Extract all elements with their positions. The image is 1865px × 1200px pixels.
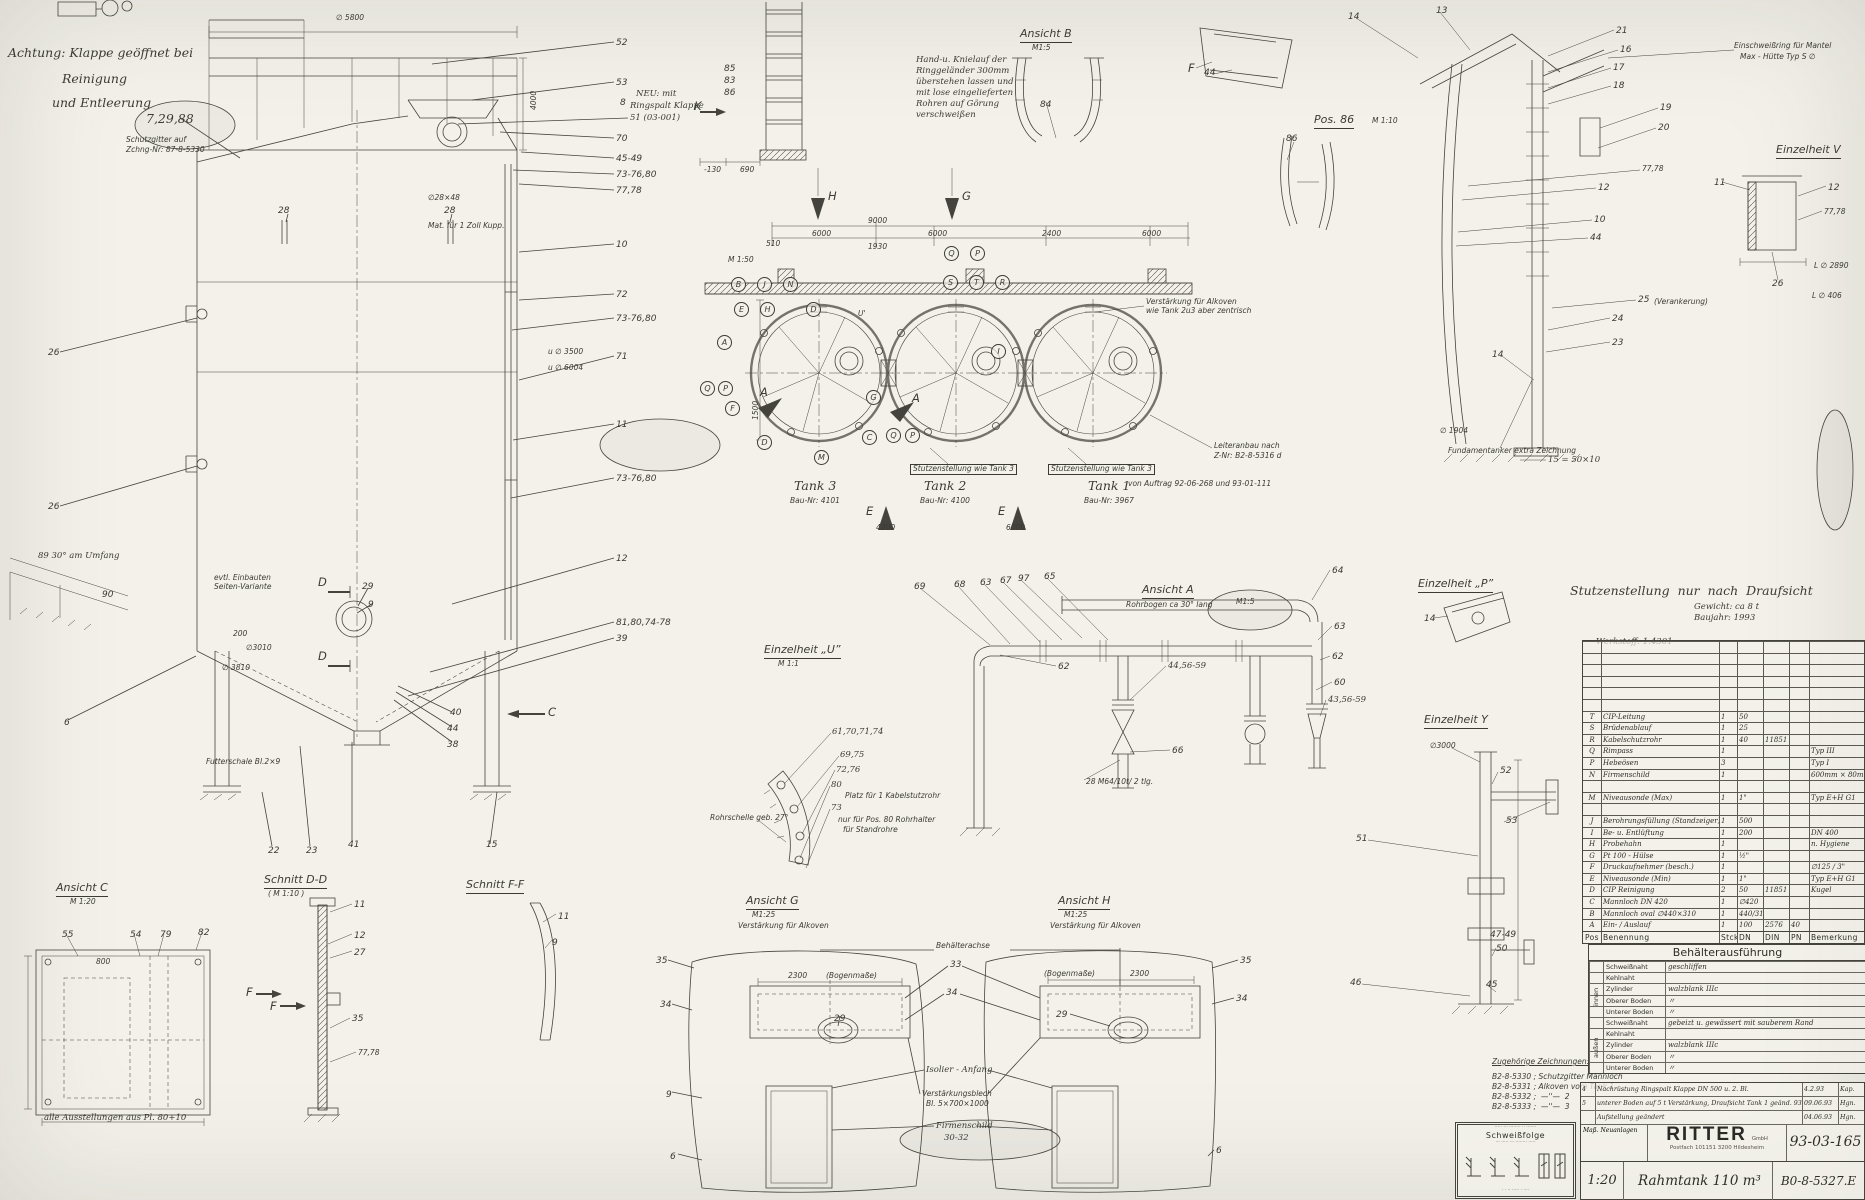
- drawing-label: Pos. 86: [1314, 114, 1354, 129]
- cell-bemerkung: DN 400: [1809, 828, 1864, 839]
- cell-label: Zylinder: [1603, 1040, 1665, 1050]
- cell-dn: [1737, 700, 1763, 711]
- cell-benennung: [1601, 665, 1719, 676]
- drawing-label: 9: [666, 1090, 672, 1100]
- drawing-label: Einzelheit V: [1776, 144, 1841, 159]
- drawing-label: 65: [1044, 572, 1055, 582]
- revision-row: 5 unterer Boden auf 5 t Verstärkung, Dra…: [1581, 1097, 1864, 1111]
- cell-dn: 200: [1737, 828, 1763, 839]
- cell-pn: [1789, 770, 1809, 781]
- drawing-label: E: [998, 505, 1005, 518]
- drawing-label: 17: [1613, 63, 1624, 73]
- cell-stck: 1: [1719, 851, 1737, 862]
- cell-side: [1589, 973, 1603, 983]
- cell-benennung: Pt 100 - Hülse: [1601, 851, 1719, 862]
- drawing-label: U': [858, 310, 866, 319]
- drawing-label: -130: [704, 166, 721, 175]
- drawing-label: Z-Nr: B2-8-5316 d: [1214, 452, 1281, 461]
- cell-bemerkung: Typ I: [1809, 758, 1864, 769]
- nozzle-balloon: I: [991, 344, 1006, 359]
- einzelheit-p: [1434, 592, 1510, 642]
- einzelheit-y: [1362, 748, 1558, 1014]
- drawing-label: Stutzenstellung nur nach Draufsicht: [1570, 584, 1813, 598]
- drawing-label: 81,80,74-78: [616, 618, 671, 628]
- cell-pos: [1583, 700, 1601, 711]
- nozzle-balloon: B: [731, 277, 746, 292]
- revision-no: 4: [1581, 1083, 1595, 1096]
- drawing-label: Bau-Nr: 4100: [920, 497, 970, 506]
- drawing-label: 2300: [788, 972, 807, 981]
- ausfuehrung-row: Kehlnaht: [1589, 972, 1865, 983]
- cell-din: [1763, 874, 1789, 885]
- cell-bemerkung: Kugel: [1809, 885, 1864, 896]
- drawing-label: Verstärkungsblech: [922, 1090, 992, 1099]
- cell-benennung: Be- u. Entlüftung: [1601, 828, 1719, 839]
- nozzle-balloon: P: [970, 246, 985, 261]
- nozzle-balloon: P: [905, 428, 920, 443]
- cell-bemerkung: [1809, 804, 1864, 815]
- cell-stck: 1: [1719, 712, 1737, 723]
- parts-table-row: Q Rimpass 1 Typ III: [1583, 745, 1864, 757]
- drawing-label: 52: [1500, 766, 1511, 776]
- drawing-label: 12: [354, 931, 365, 941]
- cell-din: [1763, 909, 1789, 920]
- drawing-label: für Standrohre: [843, 826, 898, 835]
- cell-dn: 1": [1737, 793, 1763, 804]
- drawing-label: 61,70,71,74: [832, 728, 883, 738]
- drawing-label: 6000: [1142, 230, 1161, 239]
- drawing-label: und Entleerung: [52, 96, 151, 110]
- cell-bemerkung: n. Hygiene: [1809, 839, 1864, 850]
- drawing-label: 44,56-59: [1168, 662, 1206, 672]
- drawing-label: 11: [354, 900, 365, 910]
- nozzle-balloon: S: [943, 275, 958, 290]
- drawing-label: 6: [64, 718, 70, 728]
- drawing-label: Schnitt D-D: [264, 874, 327, 889]
- drawing-label: 4200: [876, 524, 895, 533]
- drawing-label: Verstärkung für Alkoven: [738, 922, 829, 931]
- drawing-label: 77,78: [616, 186, 642, 196]
- nozzle-balloon: N: [783, 277, 798, 292]
- cell-benennung: Niveausonde (Min): [1601, 874, 1719, 885]
- cell-stck: [1719, 677, 1737, 688]
- cell-pos: [1583, 677, 1601, 688]
- cell-pos: A: [1583, 920, 1601, 931]
- cell-din: 2576: [1763, 920, 1789, 931]
- cell-pos: J: [1583, 816, 1601, 827]
- cell-label: Unterer Boden: [1603, 1007, 1665, 1017]
- drawing-label: 90: [102, 590, 113, 600]
- drawing-label: 8: [620, 98, 626, 108]
- cell-stck: [1719, 642, 1737, 653]
- ausfuehrung-row: Schweißnaht gebeizt u. gewässert mit sau…: [1589, 1017, 1865, 1028]
- cell-din: [1763, 723, 1789, 734]
- revision-rows: 4 Nachrüstung Ringspalt Klappe DN 500 u.…: [1581, 1083, 1864, 1125]
- cell-pn: [1789, 735, 1809, 746]
- drawing-label: 52: [616, 38, 627, 48]
- drawing-label: 71: [616, 352, 627, 362]
- drawing-label: 46: [1350, 978, 1361, 988]
- drawing-label: 35: [352, 1014, 363, 1024]
- drawing-label: Stutzenstellung wie Tank 3: [1048, 464, 1155, 475]
- ausfuehrung-title: Behälterausführung: [1589, 945, 1865, 961]
- drawing-label: 79: [160, 930, 171, 940]
- drawing-label: u ∅ 3500: [548, 348, 583, 357]
- cell-bemerkung: [1809, 665, 1864, 676]
- drawing-label: Isolier - Anfang: [926, 1066, 992, 1076]
- cell-pn: [1789, 688, 1809, 699]
- drawing-label: ∅ 1904: [1440, 427, 1468, 436]
- cell-pos: M: [1583, 793, 1601, 804]
- drawing-label: F: [246, 986, 253, 999]
- cell-stck: 1: [1719, 909, 1737, 920]
- cell-dn: 440/310: [1737, 909, 1763, 920]
- drawing-label: 29: [834, 1014, 845, 1024]
- drawing-label: M1:25: [752, 911, 775, 920]
- cell-din: [1763, 642, 1789, 653]
- cell-pos: [1583, 665, 1601, 676]
- cell-bemerkung: Bemerkung: [1809, 932, 1864, 943]
- title-block: 4 Nachrüstung Ringspalt Klappe DN 500 u.…: [1580, 1082, 1865, 1200]
- cell-label: Schweißnaht: [1603, 1018, 1665, 1028]
- drawing-label: M1:5: [1236, 598, 1255, 607]
- cell-bemerkung: [1809, 688, 1864, 699]
- drawing-label: 26: [48, 502, 59, 512]
- roof-sketch: [1356, 12, 1560, 88]
- drawing-label: 16: [1620, 45, 1631, 55]
- cell-dn: [1737, 770, 1763, 781]
- cell-stck: [1719, 804, 1737, 815]
- drawing-label: Achtung: Klappe geöffnet bei: [8, 46, 193, 60]
- drawing-label: u ∅ 6004: [548, 364, 583, 373]
- drawing-label: 6000: [928, 230, 947, 239]
- cell-din: [1763, 758, 1789, 769]
- drawing-label: 73-76,80: [616, 474, 656, 484]
- cell-stck: 2: [1719, 885, 1737, 896]
- cell-bemerkung: 600mm × 80mm: [1809, 770, 1864, 781]
- cell-stck: 1: [1719, 828, 1737, 839]
- parts-table-row: [1583, 664, 1864, 676]
- cell-pos: I: [1583, 828, 1601, 839]
- einzelheit-v: [1722, 176, 1826, 280]
- cell-pos: D: [1583, 885, 1601, 896]
- revision-no: 5: [1581, 1097, 1595, 1110]
- drawing-label: E: [866, 505, 873, 518]
- drawing-label: Gewicht: ca 8 t: [1694, 603, 1759, 613]
- cell-din: [1763, 851, 1789, 862]
- cell-pos: [1583, 804, 1601, 815]
- drawing-label: 6: [670, 1152, 676, 1162]
- cell-pn: [1789, 909, 1809, 920]
- drawing-label: 26: [48, 348, 59, 358]
- ansicht-g: [689, 951, 924, 1192]
- cell-stck: [1719, 688, 1737, 699]
- cell-dn: 25: [1737, 723, 1763, 734]
- cell-pos: H: [1583, 839, 1601, 850]
- drawing-label: Mat. für 1 Zoll Kupp.: [428, 222, 504, 231]
- right-elevation: [1442, 30, 1734, 462]
- drawing-label: 35: [656, 956, 667, 966]
- cell-pn: PN: [1789, 932, 1809, 943]
- cell-dn: 100: [1737, 920, 1763, 931]
- cell-pos: [1583, 654, 1601, 665]
- parts-table-row: [1583, 699, 1864, 711]
- drawing-label: Baujahr: 1993: [1694, 614, 1755, 624]
- parts-table-row: G Pt 100 - Hülse 1 ½": [1583, 850, 1864, 862]
- drawing-label: 9000: [868, 217, 887, 226]
- company-logo: RITTER GmbH Postfach 101151 3200 Hildesh…: [1647, 1125, 1786, 1161]
- parts-table-row: S Brüdenablauf 1 25: [1583, 722, 1864, 734]
- drawing-label: 7,29,88: [146, 112, 194, 126]
- ausfuehrung-row: Kehlnaht: [1589, 1028, 1865, 1039]
- drawing-label: F: [270, 1000, 277, 1013]
- drawing-label: 64: [1332, 566, 1343, 576]
- drawing-label: Verstärkung für Alkoven: [1050, 922, 1141, 931]
- drawing-label: 25: [1638, 295, 1649, 305]
- cell-label: Schweißnaht: [1603, 962, 1665, 972]
- parts-table-row: Pos Benennung Stck DN DIN PN Bemerkung: [1583, 931, 1864, 943]
- drawing-label: 72: [616, 290, 627, 300]
- drawing-label: 9: [368, 600, 374, 610]
- cell-benennung: Ein- / Auslauf: [1601, 920, 1719, 931]
- cell-pos: [1583, 688, 1601, 699]
- drawing-label: (Verankerung): [1654, 298, 1708, 307]
- drawing-label: mit lose eingelieferten: [916, 89, 1013, 99]
- cell-pos: Pos: [1583, 932, 1601, 943]
- cell-dn: [1737, 688, 1763, 699]
- parts-table-row: [1583, 653, 1864, 665]
- drawing-label: 29: [362, 582, 373, 592]
- drawing-label: 34: [660, 1000, 671, 1010]
- drawing-label: 12: [1828, 183, 1839, 193]
- parts-table-row: P Hebeösen 3 Typ I: [1583, 757, 1864, 769]
- drawing-label: 12: [1598, 183, 1609, 193]
- nozzle-balloon: G: [866, 390, 881, 405]
- cell-pn: [1789, 654, 1809, 665]
- drawing-label: Ringspalt Klappe: [630, 102, 704, 112]
- drawing-label: F: [1188, 62, 1195, 75]
- cell-bemerkung: [1809, 897, 1864, 908]
- ausfuehrung-row: Unterer Boden 〃: [1589, 1062, 1865, 1073]
- drawing-label: 11: [616, 420, 627, 430]
- cell-benennung: Kabelschutzrohr: [1601, 735, 1719, 746]
- cell-pn: [1789, 758, 1809, 769]
- cell-pos: [1583, 642, 1601, 653]
- nozzle-balloon: M: [814, 450, 829, 465]
- cell-side: [1589, 1063, 1603, 1073]
- drawing-label: M1:25: [1064, 911, 1087, 920]
- cell-bemerkung: Typ E+H G1: [1809, 793, 1864, 804]
- cell-benennung: [1601, 654, 1719, 665]
- drawing-label: 53: [616, 78, 627, 88]
- cell-pn: [1789, 862, 1809, 873]
- cell-benennung: Brüdenablauf: [1601, 723, 1719, 734]
- drawing-label: 62: [1332, 652, 1343, 662]
- parts-table-row: C Mannloch DN 420 1 ∅420: [1583, 896, 1864, 908]
- drawing-label: 12: [616, 554, 627, 564]
- cell-pos: B: [1583, 909, 1601, 920]
- drawing-label: 27: [354, 948, 365, 958]
- revision-text: Nachrüstung Ringspalt Klappe DN 500 u. 2…: [1595, 1083, 1802, 1096]
- nozzle-balloon: C: [862, 430, 877, 445]
- drawing-label: 6000: [812, 230, 831, 239]
- cell-value: [1665, 973, 1865, 983]
- drawing-label: 73-76,80: [616, 170, 656, 180]
- drawing-label: 20: [1658, 123, 1669, 133]
- drawing-label: 77,78: [358, 1049, 379, 1058]
- cell-benennung: Druckaufnehmer (besch.): [1601, 862, 1719, 873]
- cell-side: [1589, 1018, 1603, 1028]
- drawing-label: 15: [486, 840, 497, 850]
- drawing-label: 10: [1594, 215, 1605, 225]
- cell-label: Oberer Boden: [1603, 996, 1665, 1006]
- drawing-label: 19: [1660, 103, 1671, 113]
- drawing-label: 63: [980, 578, 991, 588]
- cell-benennung: CIP-Leitung: [1601, 712, 1719, 723]
- drawing-label: 18: [1613, 81, 1624, 91]
- cell-stck: 1: [1719, 793, 1737, 804]
- nozzle-balloon: A: [717, 335, 732, 350]
- drawing-label: 62: [1058, 662, 1069, 672]
- parts-table-row: [1583, 780, 1864, 792]
- cell-value: walzblank IIIc: [1665, 1040, 1865, 1050]
- cell-value: 〃: [1665, 1052, 1865, 1062]
- parts-table-row: N Firmenschild 1 600mm × 80mm: [1583, 769, 1864, 781]
- cell-pn: [1789, 642, 1809, 653]
- cell-bemerkung: ∅125 / 3": [1809, 862, 1864, 873]
- drawing-label: 47-49: [1490, 930, 1516, 940]
- einzelheit-u: [758, 733, 839, 868]
- nozzle-balloon: T: [969, 275, 984, 290]
- cell-pos: Q: [1583, 746, 1601, 757]
- drawing-label: 24: [1612, 314, 1623, 324]
- cell-din: [1763, 700, 1789, 711]
- cell-label: Kehlnaht: [1603, 973, 1665, 983]
- drawing-label: 14: [1348, 12, 1359, 22]
- cell-pn: [1789, 781, 1809, 792]
- cell-pos: F: [1583, 862, 1601, 873]
- drawing-label: 63: [1334, 622, 1345, 632]
- drawing-label: 1930: [868, 243, 887, 252]
- drawing-label: 51: [1356, 834, 1367, 844]
- drawing-label: Reinigung: [62, 72, 127, 86]
- nozzle-balloon: Q: [886, 428, 901, 443]
- weld-stamp-title: Schweißfolge: [1458, 1131, 1573, 1140]
- drawing-label: Tank 2: [924, 479, 966, 493]
- drawing-label: Ansicht C: [56, 882, 108, 897]
- cell-bemerkung: Typ III: [1809, 746, 1864, 757]
- drawing-label: 44: [447, 724, 458, 734]
- cell-bemerkung: [1809, 920, 1864, 931]
- corner-sketch: [58, 0, 132, 16]
- drawing-label: Ringgeländer 300mm: [916, 67, 1009, 77]
- drawing-label: 2300: [1130, 970, 1149, 979]
- drawing-label: Leiteranbau nach: [1214, 442, 1280, 451]
- revision-text: unterer Boden auf 5 t Verstärkung, Drauf…: [1595, 1097, 1802, 1110]
- cell-dn: [1737, 781, 1763, 792]
- cell-dn: [1737, 862, 1763, 873]
- revision-date: 4.2.93: [1802, 1083, 1838, 1096]
- cell-value: walzblank IIIc: [1665, 984, 1865, 994]
- drawing-label: Zugehörige Zeichnungen:: [1492, 1058, 1589, 1067]
- cell-pos: P: [1583, 758, 1601, 769]
- cell-pos: R: [1583, 735, 1601, 746]
- cell-dn: [1737, 804, 1763, 815]
- drawing-label: 89 30° am Umfang: [38, 552, 119, 562]
- cell-pn: [1789, 828, 1809, 839]
- cell-stck: 1: [1719, 920, 1737, 931]
- drawing-label: C: [548, 706, 556, 719]
- parts-table-row: [1583, 641, 1864, 653]
- parts-table-row: R Kabelschutzrohr 1 40 11851: [1583, 734, 1864, 746]
- linework: [0, 0, 1865, 1200]
- drawing-label: Bl. 5×700×1000: [926, 1100, 989, 1109]
- cell-side: [1589, 1007, 1603, 1017]
- pos-86-detail: [1281, 136, 1335, 230]
- drawing-label: 45: [1486, 980, 1497, 990]
- drawing-label: Zchng-Nr: 87-8-5330: [126, 146, 205, 155]
- schnitt-ff: [530, 903, 556, 1040]
- cell-pos: N: [1583, 770, 1601, 781]
- drawing-label: 29: [1056, 1010, 1067, 1020]
- drawing-label: (Bogenmaße): [1044, 970, 1095, 979]
- drawing-label: 33: [950, 960, 961, 970]
- ausfuehrung-rows: Schweißnaht geschliffen Kehlnaht Zylinde…: [1589, 961, 1865, 1073]
- drawing-label: ( M 1:10 ): [268, 890, 304, 899]
- cell-benennung: [1601, 804, 1719, 815]
- drawing-label: A: [760, 386, 768, 399]
- cell-bemerkung: [1809, 654, 1864, 665]
- ansicht-c: [24, 932, 210, 1126]
- drawing-label: 14: [1424, 614, 1435, 624]
- cell-pn: [1789, 746, 1809, 757]
- drawing-label: 11: [558, 912, 569, 922]
- drawing-label: Hand-u. Knielauf der: [916, 56, 1006, 66]
- drawing-label: 1500: [752, 401, 761, 420]
- drawing-scale: 1:20: [1581, 1162, 1623, 1200]
- drawing-label: Rohrschelle geb. 27°: [710, 814, 788, 823]
- cell-label: Kehlnaht: [1603, 1029, 1665, 1039]
- front-leaders: [60, 42, 628, 846]
- cell-din: [1763, 746, 1789, 757]
- drawing-label: 69: [914, 582, 925, 592]
- drawing-label: 83: [724, 76, 735, 86]
- ausfuehrung-row: Schweißnaht geschliffen: [1589, 961, 1865, 972]
- drawing-label: 50: [1496, 944, 1507, 954]
- drawing-label: 55: [62, 930, 73, 940]
- cell-pos: T: [1583, 712, 1601, 723]
- drawing-label: H: [828, 190, 837, 203]
- side-label-innen: innen: [1592, 988, 1600, 1006]
- drawing-label: 54: [130, 930, 141, 940]
- drawing-label: 200: [233, 630, 247, 639]
- drawing-label: 13: [1436, 6, 1447, 16]
- drawing-label: 6: [1216, 1146, 1222, 1156]
- drawing-label: 66: [1172, 746, 1183, 756]
- drawing-label: 39: [616, 634, 627, 644]
- ausfuehrung-row: Oberer Boden 〃: [1589, 1051, 1865, 1062]
- ausfuehrung-row: Unterer Boden 〃: [1589, 1006, 1865, 1017]
- revision-no: [1581, 1111, 1595, 1124]
- cell-din: [1763, 816, 1789, 827]
- drawing-label: Platz für 1 Kabelstutzrohr: [845, 792, 940, 801]
- drawing-label: 38: [447, 740, 458, 750]
- drawing-label: 73: [831, 804, 842, 814]
- cell-bemerkung: [1809, 735, 1864, 746]
- drawing-label: 41: [348, 840, 359, 850]
- drawing-label: 22: [268, 846, 279, 856]
- cell-bemerkung: [1809, 712, 1864, 723]
